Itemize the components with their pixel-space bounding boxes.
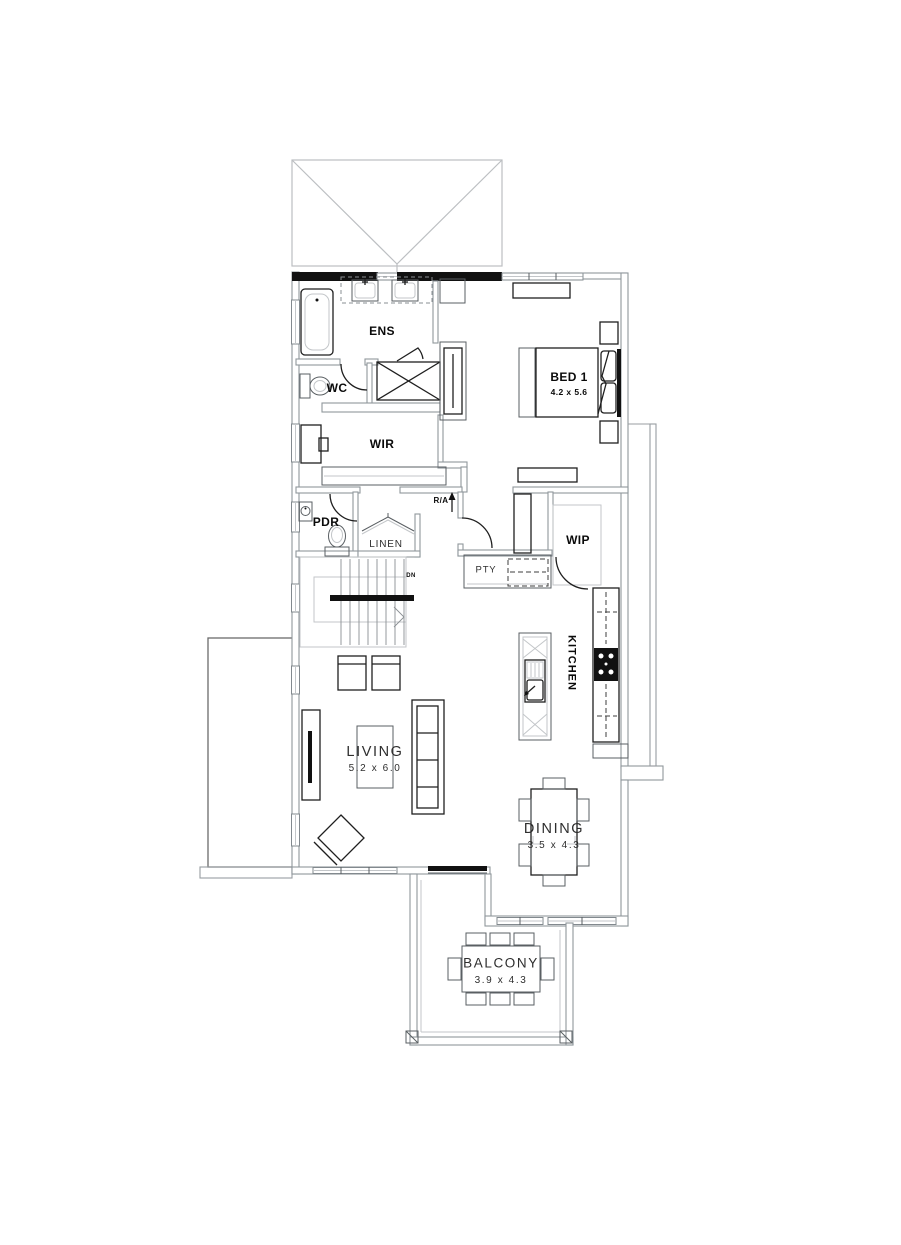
roof-outline [292,160,502,272]
return-air-arrow [449,492,456,512]
label-return-air: R/A [434,497,449,505]
label-wir: WIR [370,438,395,450]
staircase [300,557,414,647]
label-stair-direction: DN [406,573,415,579]
floor-plan-drawing [0,0,901,1245]
shower [377,348,440,400]
label-balcony: BALCONY [463,956,539,970]
label-bed1-dims: 4.2 x 5.6 [551,388,588,397]
label-wc: WC [327,382,348,394]
hall-door-swing [462,518,492,548]
label-pdr: PDR [313,516,340,528]
label-living: LIVING [346,745,403,760]
walk-in-pantry [553,505,601,589]
mirror-cabinet [440,342,466,420]
label-kitchen: KITCHEN [566,635,577,691]
tall-cabinet [514,494,531,553]
label-wip: WIP [566,534,590,546]
living-furniture [302,656,444,865]
lower-roof-outline [200,638,293,878]
label-dining: DINING [524,822,584,837]
kitchen-island [519,633,551,740]
label-pantry: PTY [476,565,497,575]
label-balcony-dims: 3.9 x 4.3 [475,976,528,986]
label-bed1: BED 1 [550,371,587,383]
label-living-dims: 5.2 x 6.0 [349,764,402,774]
interior-walls [296,281,628,557]
label-dining-dims: 3.5 x 4.3 [528,841,581,851]
linen-doors [362,513,414,534]
label-linen: LINEN [369,540,402,550]
label-ens: ENS [369,325,395,337]
floor-plan-canvas: ENS WC BED 1 4.2 x 5.6 WIR PDR LINEN R/A… [0,0,901,1245]
wardrobe-units [301,425,446,485]
bathtub [301,289,333,355]
